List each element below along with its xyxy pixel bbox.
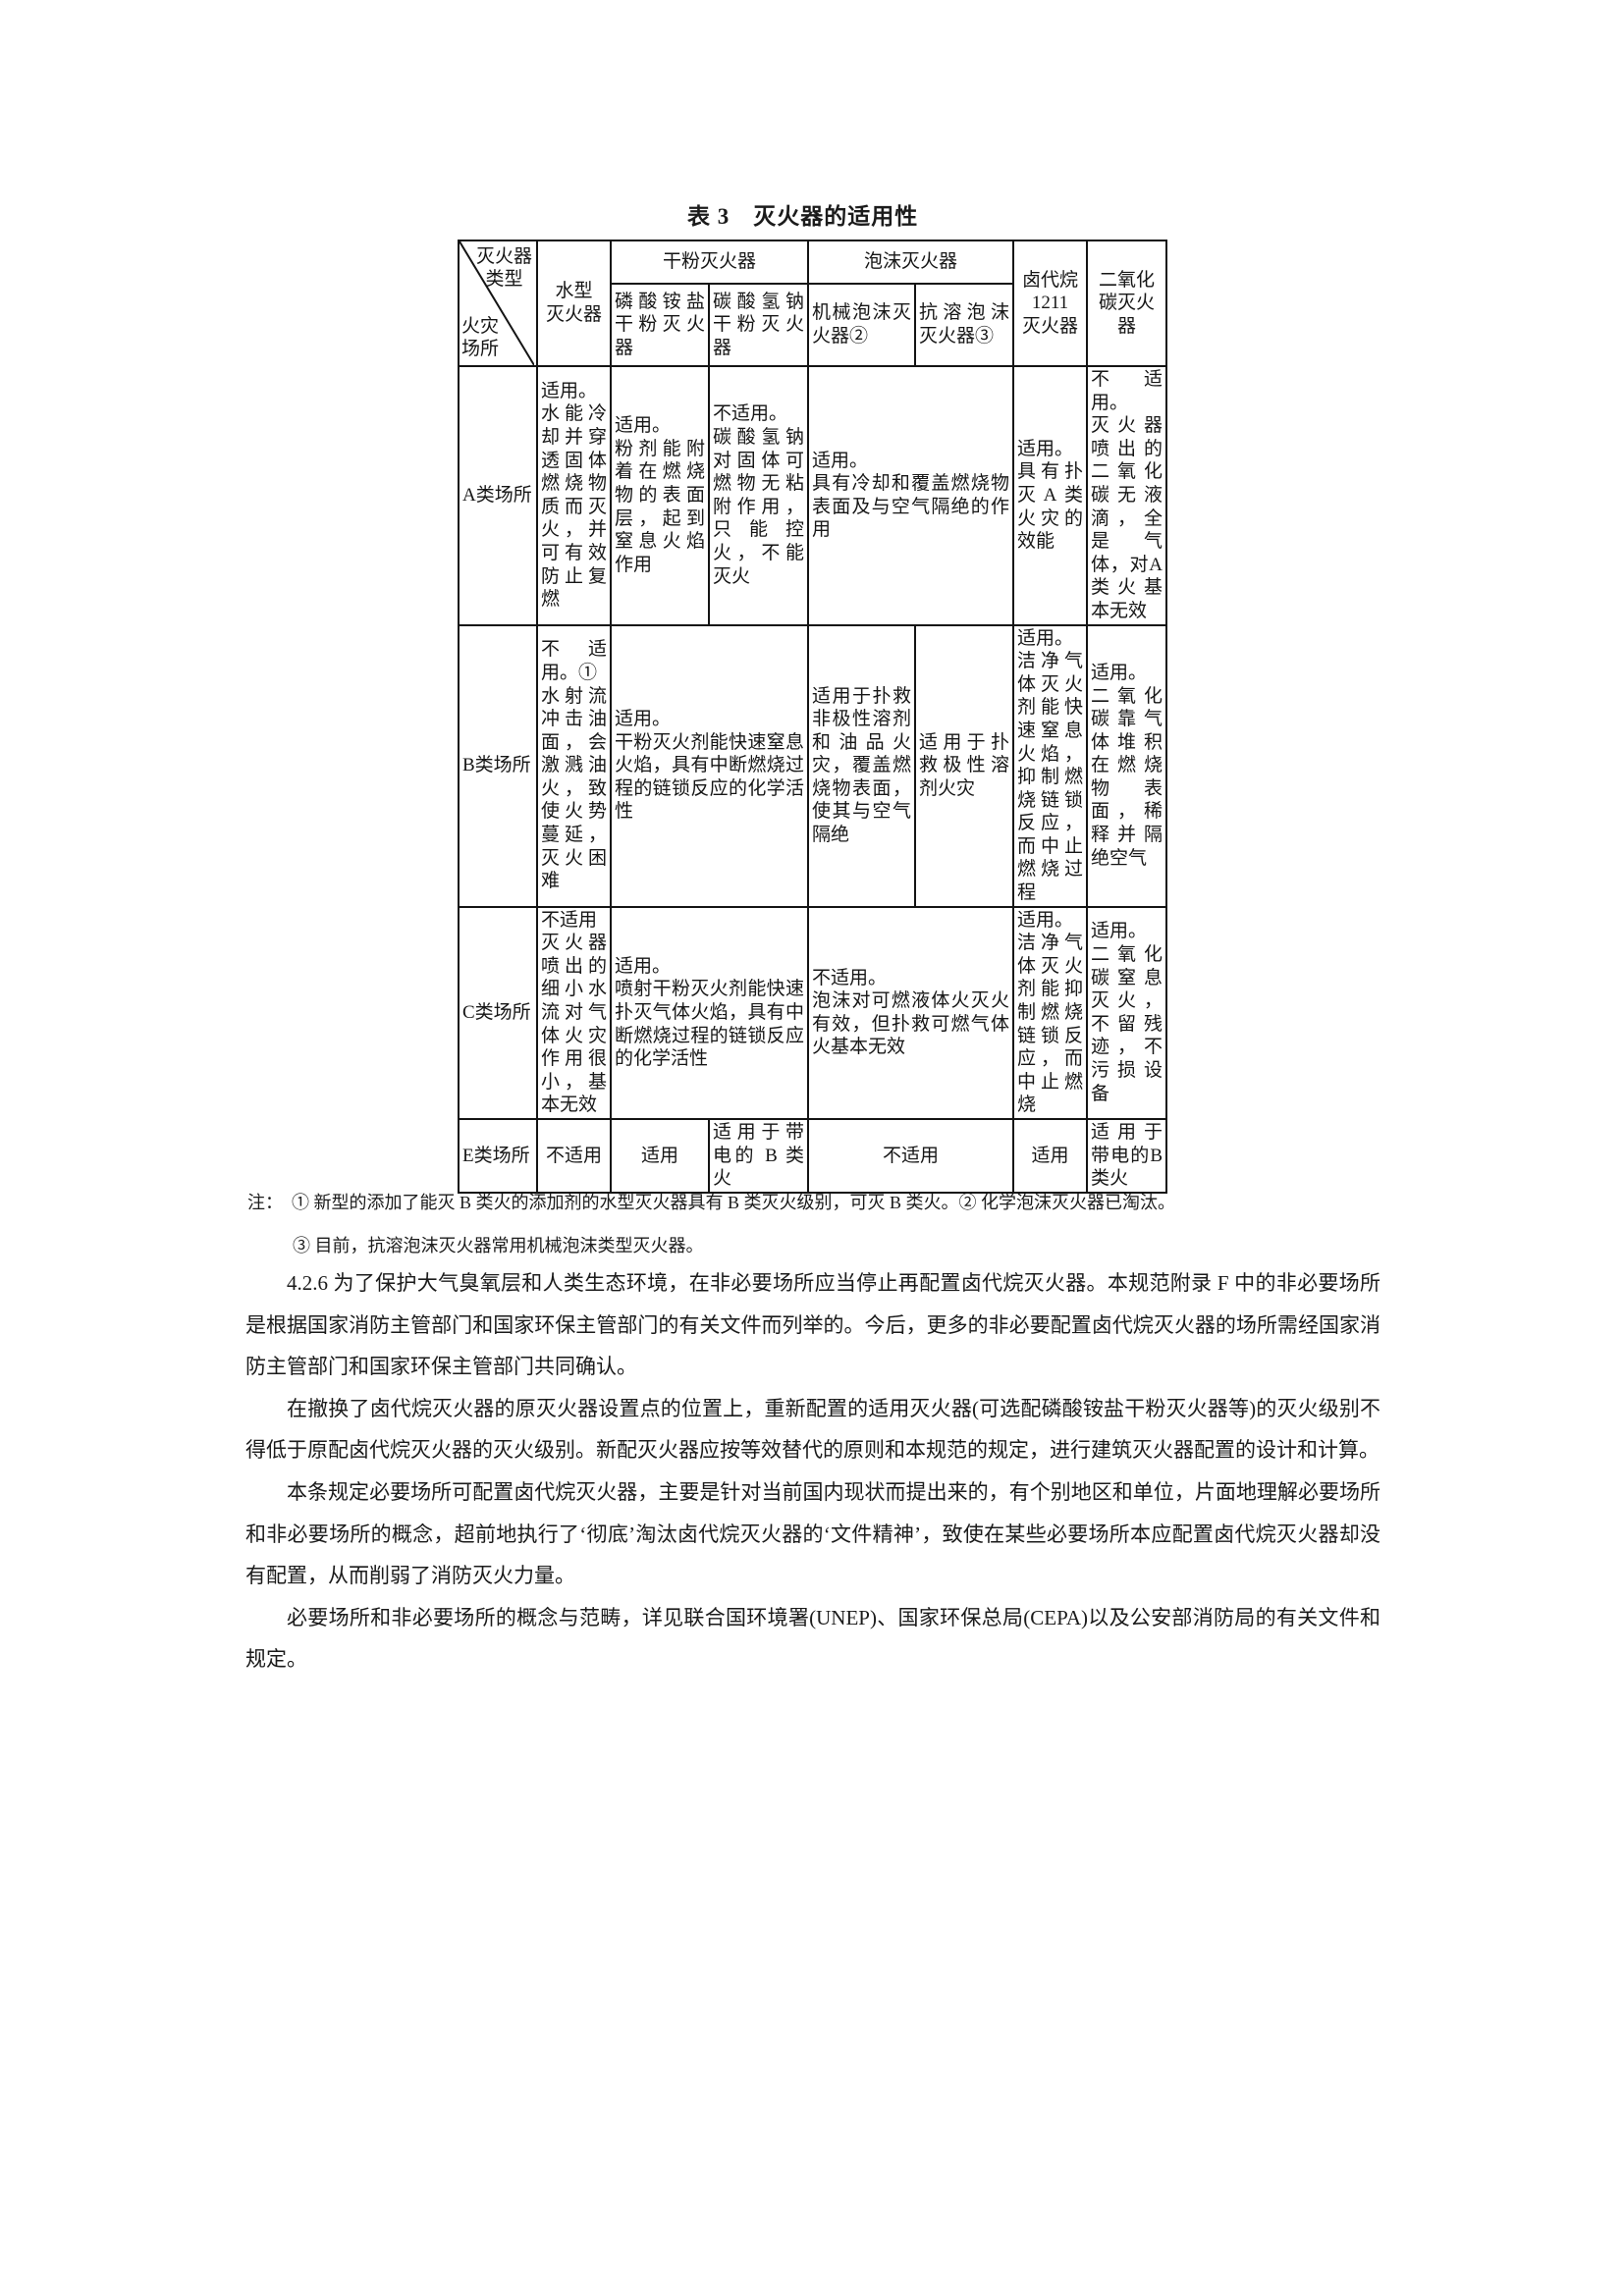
cell-a-water: 适用。 水能冷却并穿透固体燃烧物质而灭火，并可有效防止复燃: [537, 366, 611, 625]
diagonal-label-fire-place: 火灾 场所: [461, 315, 499, 360]
table-row-class-c: C类场所 不适用 灭火器喷出的细小水流对气体火灾作用很小，基本无效 适用。 喷射…: [459, 907, 1166, 1119]
row-label-class-b: B类场所: [459, 625, 537, 907]
header-abc-powder: 磷酸铵盐干粉灭火器: [611, 284, 709, 366]
cell-b-co2: 适用。 二氧化碳靠气体堆积在燃烧物表面，稀释并隔绝空气: [1087, 625, 1166, 907]
cell-c-dry-powder: 适用。 喷射干粉灭火剂能快速扑灭气体火焰，具有中断燃烧过程的链锁反应的化学活性: [611, 907, 808, 1119]
cell-a-foam: 适用。 具有冷却和覆盖燃烧物表面及与空气隔绝的作用: [808, 366, 1013, 625]
header-alcohol-resistant-foam: 抗溶泡沫灭火器③: [915, 284, 1013, 366]
paragraph-necessary-places: 本条规定必要场所可配置卤代烷灭火器，主要是针对当前国内现状而提出来的，有个别地区…: [245, 1471, 1380, 1597]
cell-c-water: 不适用 灭火器喷出的细小水流对气体火灾作用很小，基本无效: [537, 907, 611, 1119]
header-foam-group: 泡沫灭火器: [808, 240, 1013, 284]
paragraph-unep-cepa: 必要场所和非必要场所的概念与范畴，详见联合国环境署(UNEP)、国家环保总局(C…: [245, 1597, 1380, 1681]
header-co2: 二氧化 碳灭火 器: [1087, 240, 1166, 366]
cell-c-halon: 适用。 洁净气体灭火剂能抑制燃烧链锁反应，而中止燃烧: [1013, 907, 1087, 1119]
diagonal-label-extinguisher-type: 灭火器 类型: [476, 245, 532, 291]
header-mechanical-foam: 机械泡沫灭火器②: [808, 284, 915, 366]
table-note-1: 注： ① 新型的添加了能灭 B 类火的添加剂的水型灭火器具有 B 类灭火级别，可…: [247, 1191, 1391, 1214]
header-dry-powder-group: 干粉灭火器: [611, 240, 808, 284]
document-page: 表 3 灭火器的适用性 灭火器 类型 火灾 场所 水型 灭火器 干粉灭火器 泡沫…: [0, 0, 1623, 2296]
row-label-class-e: E类场所: [459, 1119, 537, 1193]
cell-a-co2: 不适用。 灭火器喷出的二氧化碳无液滴，全是气体，对A类火基本无效: [1087, 366, 1166, 625]
cell-e-halon: 适用: [1013, 1119, 1087, 1193]
cell-e-abc-powder: 适用: [611, 1119, 709, 1193]
table-row-class-a: A类场所 适用。 水能冷却并穿透固体燃烧物质而灭火，并可有效防止复燃 适用。 粉…: [459, 366, 1166, 625]
cell-e-foam: 不适用: [808, 1119, 1013, 1193]
cell-c-foam: 不适用。 泡沫对可燃液体火灭火有效，但扑救可燃气体火基本无效: [808, 907, 1013, 1119]
cell-b-alcohol-resistant-foam: 适用于扑救极性溶剂火灾: [915, 625, 1013, 907]
table-row-class-e: E类场所 不适用 适用 适用于带电的 B 类火 不适用 适用 适用于带电的B类火: [459, 1119, 1166, 1193]
row-label-class-c: C类场所: [459, 907, 537, 1119]
header-row-groups: 灭火器 类型 火灾 场所 水型 灭火器 干粉灭火器 泡沫灭火器 卤代烷 1211…: [459, 240, 1166, 284]
row-label-class-a: A类场所: [459, 366, 537, 625]
paragraph-replacement-rule: 在撤换了卤代烷灭火器的原灭火器设置点的位置上，重新配置的适用灭火器(可选配磷酸铵…: [245, 1388, 1380, 1471]
table-row-class-b: B类场所 不适用。① 水射流冲击油面，会激溅油火，致使火势蔓延，灭火困难 适用。…: [459, 625, 1166, 907]
cell-e-co2: 适用于带电的B类火: [1087, 1119, 1166, 1193]
header-diagonal-cell: 灭火器 类型 火灾 场所: [459, 240, 537, 366]
table-title: 表 3 灭火器的适用性: [687, 197, 918, 231]
body-text: 4.2.6 为了保护大气臭氧层和人类生态环境，在非必要场所应当停止再配置卤代烷灭…: [245, 1262, 1380, 1681]
header-water-type: 水型 灭火器: [537, 240, 611, 366]
cell-a-bc-powder: 不适用。 碳酸氢钠对固体可燃物无粘附作用，只能控火，不能灭火: [709, 366, 808, 625]
cell-b-mechanical-foam: 适用于扑救非极性溶剂和油品火灾，覆盖燃烧物表面，使其与空气隔绝: [808, 625, 915, 907]
cell-b-halon: 适用。 洁净气体灭火剂能快速窒息火焰，抑制燃烧链锁反应，而中止燃烧过程: [1013, 625, 1087, 907]
table-notes: 注： ① 新型的添加了能灭 B 类火的添加剂的水型灭火器具有 B 类灭火级别，可…: [247, 1191, 1391, 1257]
cell-e-bc-powder: 适用于带电的 B 类火: [709, 1119, 808, 1193]
cell-e-water: 不适用: [537, 1119, 611, 1193]
cell-b-water: 不适用。① 水射流冲击油面，会激溅油火，致使火势蔓延，灭火困难: [537, 625, 611, 907]
table-note-2: ③ 目前，抗溶泡沫灭火器常用机械泡沫类型灭火器。: [293, 1234, 1391, 1257]
header-bc-powder: 碳酸氢钠干粉灭火器: [709, 284, 808, 366]
cell-a-abc-powder: 适用。 粉剂能附着在燃烧物的表面层，起到窒息火焰作用: [611, 366, 709, 625]
paragraph-4-2-6: 4.2.6 为了保护大气臭氧层和人类生态环境，在非必要场所应当停止再配置卤代烷灭…: [245, 1262, 1380, 1388]
header-halon-1211: 卤代烷 1211 灭火器: [1013, 240, 1087, 366]
cell-b-dry-powder: 适用。 干粉灭火剂能快速窒息火焰，具有中断燃烧过程的链锁反应的化学活性: [611, 625, 808, 907]
extinguisher-applicability-table: 灭火器 类型 火灾 场所 水型 灭火器 干粉灭火器 泡沫灭火器 卤代烷 1211…: [458, 240, 1167, 1194]
cell-c-co2: 适用。 二氧化碳窒息灭火，不留残迹，不污损设备: [1087, 907, 1166, 1119]
cell-a-halon: 适用。 具有扑灭A类火灾的效能: [1013, 366, 1087, 625]
